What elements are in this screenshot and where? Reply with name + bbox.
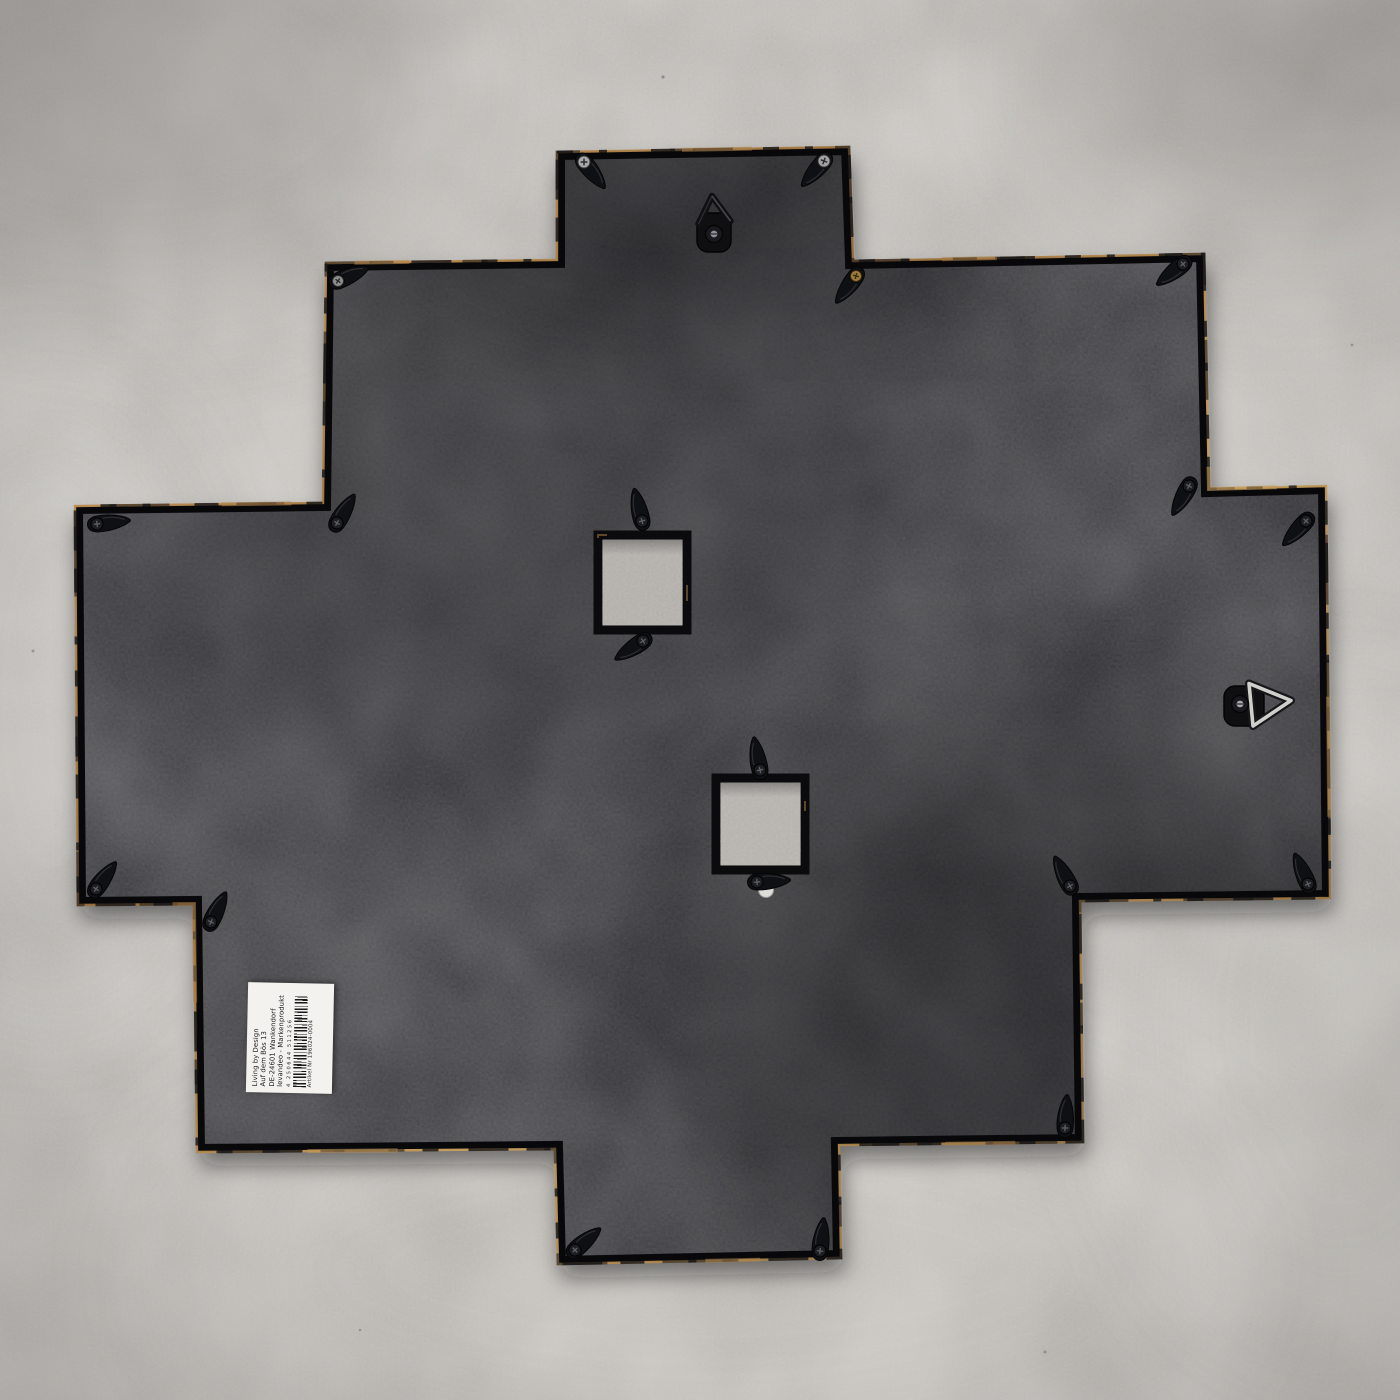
barcode — [293, 995, 308, 1087]
photo-scene: Living by Design Auf dem Bös 13 DE-24601… — [0, 0, 1400, 1400]
product-label-face: Living by Design Auf dem Bös 13 DE-24601… — [246, 982, 334, 1094]
label-product-line: levandeo - Markenprodukt — [276, 989, 286, 1087]
article-number: Artikel Nr 196024-0004 — [307, 989, 315, 1087]
product-label: Living by Design Auf dem Bös 13 DE-24601… — [246, 982, 334, 1094]
vignette — [0, 0, 1400, 1400]
photo-canvas — [0, 0, 1400, 1400]
